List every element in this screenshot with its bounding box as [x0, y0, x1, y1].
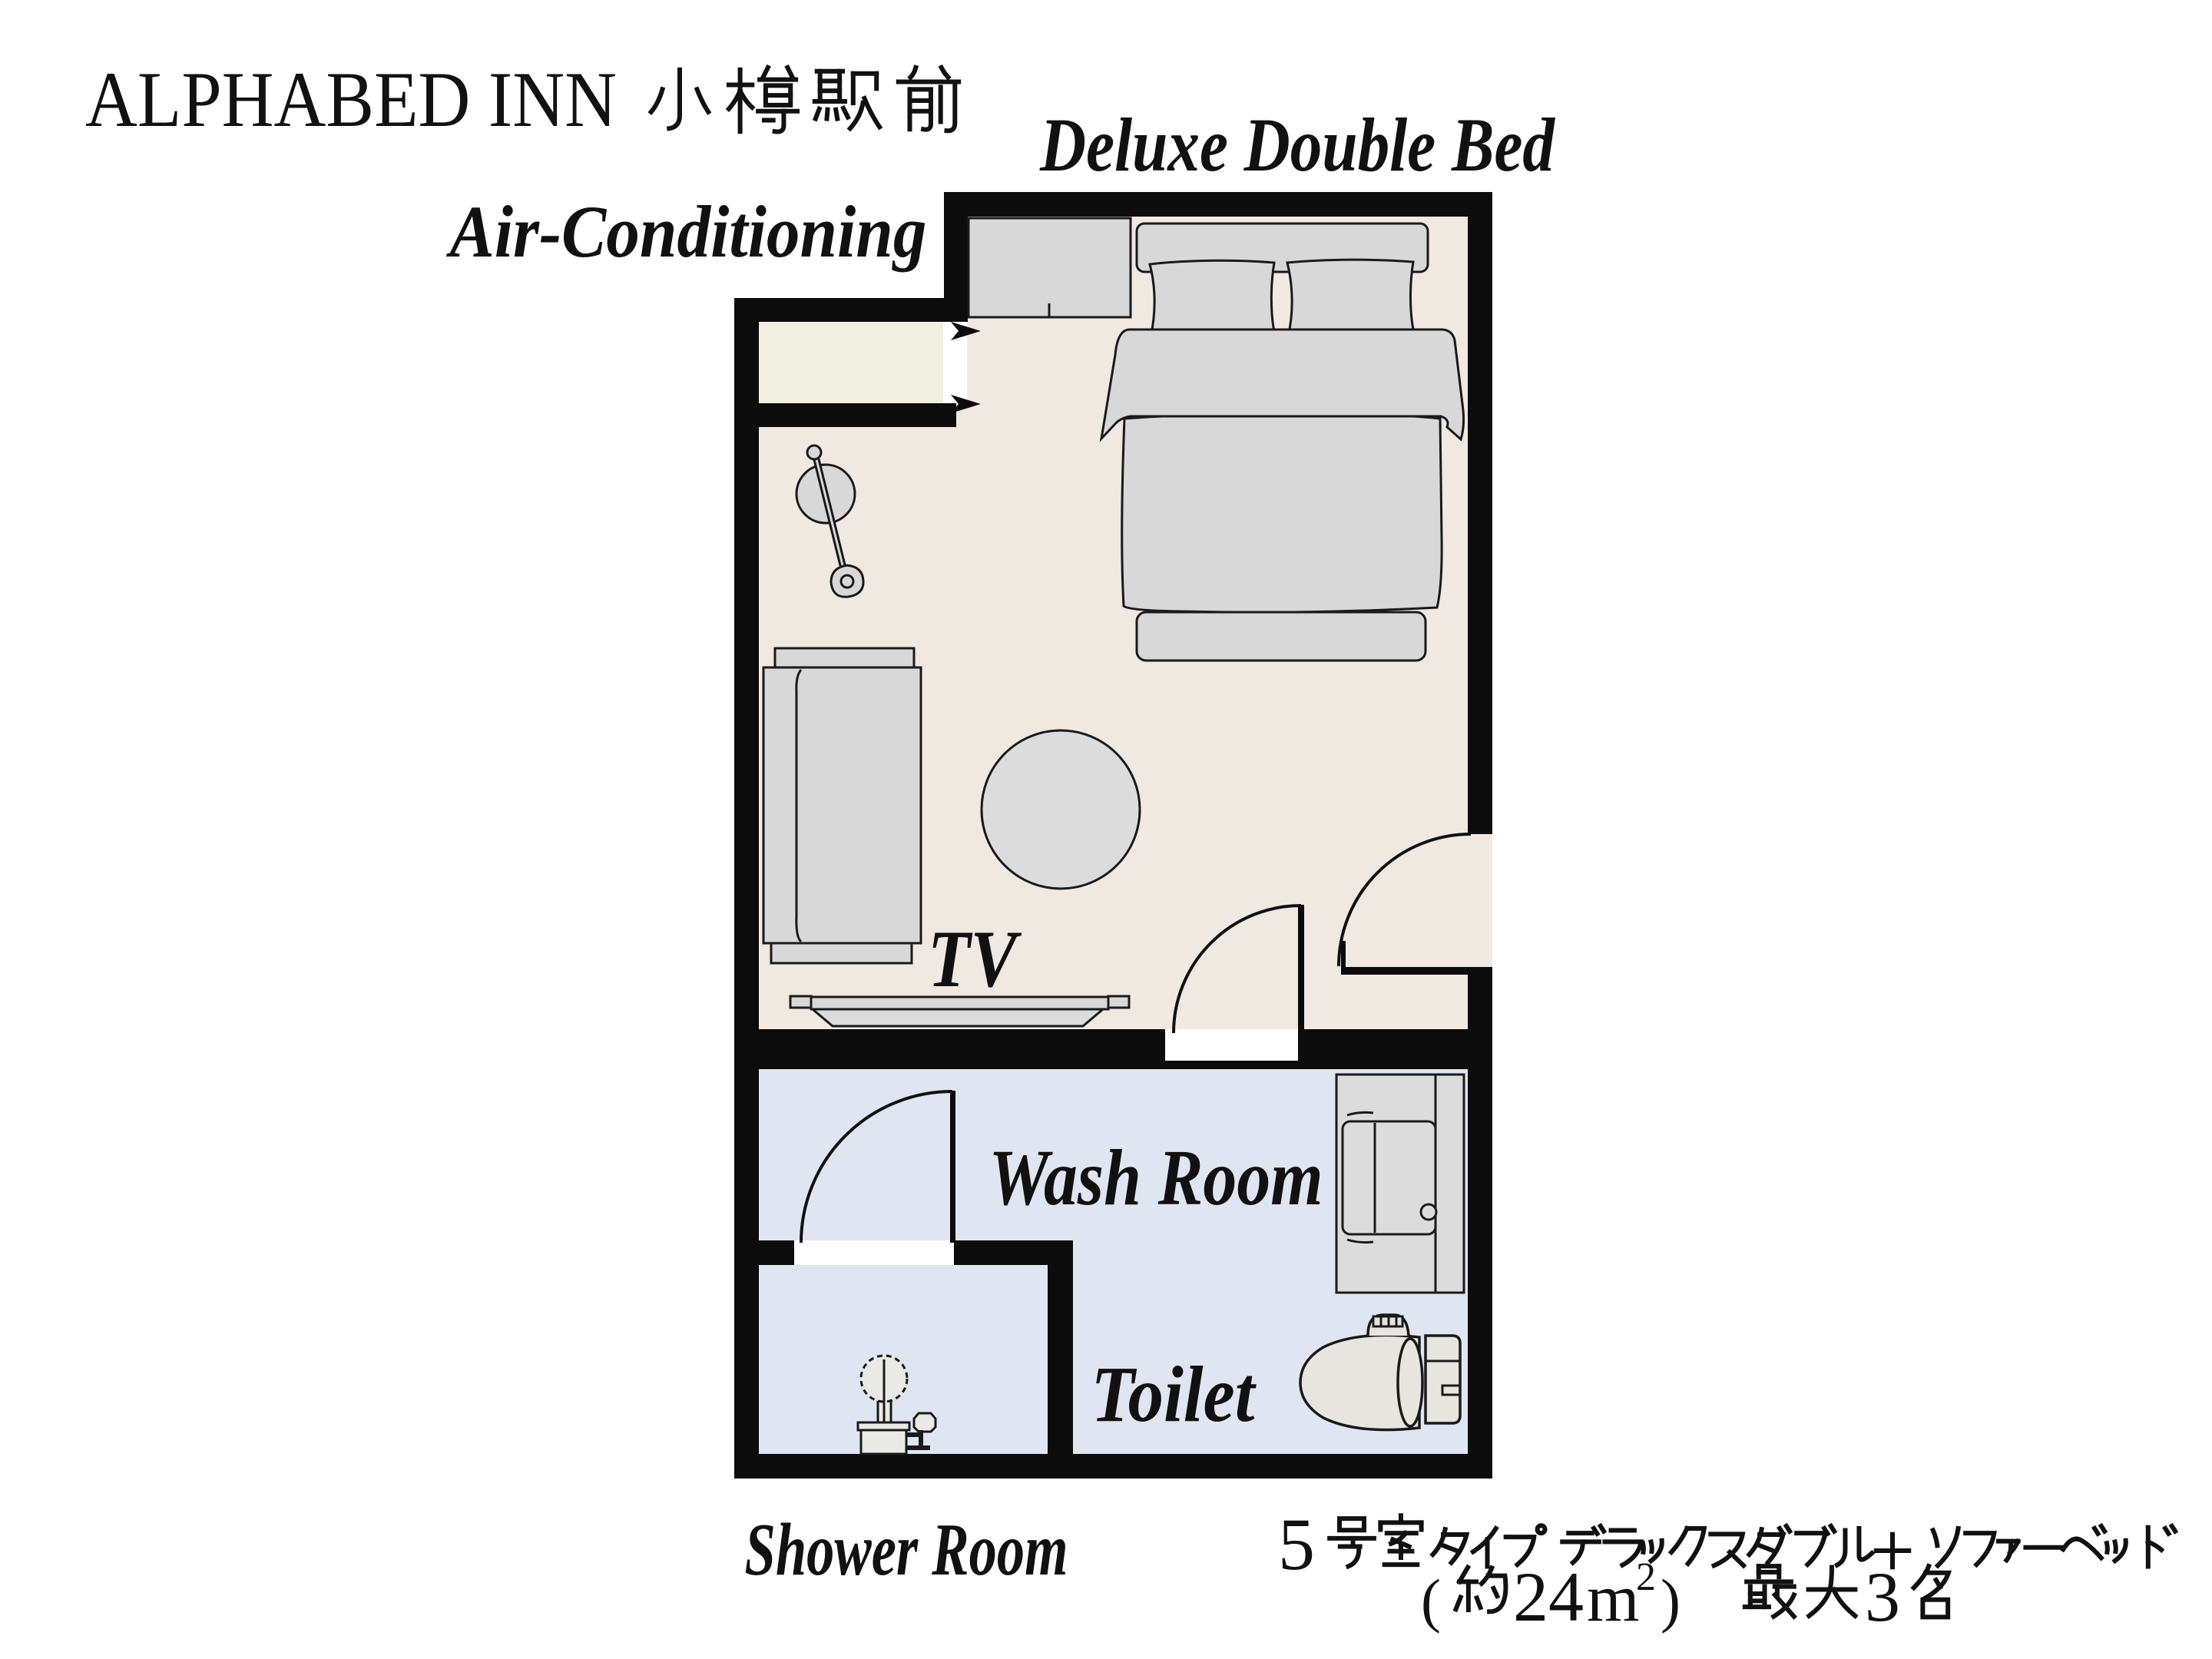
- svg-text:Shower Room: Shower Room: [745, 1508, 1068, 1591]
- svg-text:3: 3: [1865, 1558, 1900, 1636]
- svg-text:(: (: [1421, 1567, 1441, 1634]
- svg-text:ALPHABED INN: ALPHABED INN: [85, 56, 617, 144]
- svg-text:24: 24: [1513, 1558, 1584, 1636]
- svg-text:5: 5: [1278, 1503, 1315, 1585]
- svg-text:Toilet: Toilet: [1091, 1350, 1257, 1439]
- svg-text:2: 2: [1636, 1555, 1656, 1599]
- svg-text:Wash Room: Wash Room: [989, 1134, 1323, 1222]
- svg-text:TV: TV: [928, 914, 1022, 1004]
- svg-text:m: m: [1587, 1561, 1639, 1636]
- svg-text:Air-Conditioning: Air-Conditioning: [446, 190, 927, 273]
- svg-text:): ): [1661, 1567, 1681, 1634]
- svg-text:Deluxe Double Bed: Deluxe Double Bed: [1039, 102, 1555, 187]
